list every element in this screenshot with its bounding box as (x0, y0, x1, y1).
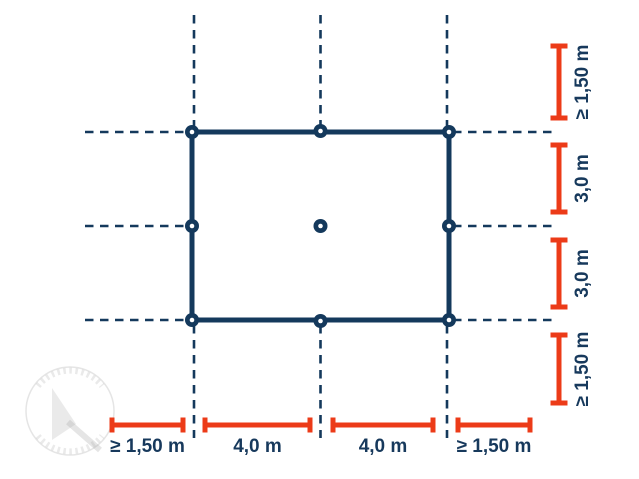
anchor-dot-middle-left (185, 219, 199, 233)
dim-label-right-clearance-bottom: ≥ 1,50 m (572, 332, 593, 407)
dim-label-right-upper-half: 3,0 m (572, 154, 593, 203)
dim-bracket-right-edge-top (551, 46, 568, 118)
dim-label-bottom-clearance-left: ≥ 1,50 m (110, 436, 185, 457)
anchor-dots (185, 124, 456, 328)
dim-bracket-bottom-right-half (333, 418, 433, 433)
anchor-dot-top-right (442, 125, 456, 139)
diagram-canvas: ≥ 1,50 m 3,0 m 3,0 m ≥ 1,50 m ≥ 1,50 m 4… (0, 0, 639, 479)
dim-label-bottom-right-half: 4,0 m (359, 436, 408, 457)
watermark-cursor-tail (68, 422, 100, 450)
watermark-circle (26, 367, 114, 455)
dim-label-right-lower-half: 3,0 m (572, 249, 593, 298)
anchor-dot-bottom-right (442, 313, 456, 327)
dim-bracket-right-edge-bottom (551, 335, 568, 403)
dim-label-bottom-clearance-right: ≥ 1,50 m (457, 436, 532, 457)
anchor-dot-center (314, 219, 328, 233)
dim-label-right-clearance-top: ≥ 1,50 m (572, 45, 593, 120)
spacing-diagram: ≥ 1,50 m 3,0 m 3,0 m ≥ 1,50 m ≥ 1,50 m 4… (0, 0, 639, 479)
watermark-logo (26, 367, 114, 455)
dimension-brackets-right: ≥ 1,50 m 3,0 m 3,0 m ≥ 1,50 m (551, 45, 594, 407)
watermark-cursor-icon (52, 388, 76, 440)
anchor-dot-bottom-middle (314, 314, 328, 328)
dim-bracket-right-lower-half (551, 240, 568, 307)
anchor-dot-bottom-left (185, 313, 199, 327)
dim-bracket-bottom-left-half (205, 418, 310, 433)
anchor-dot-top-left (185, 125, 199, 139)
anchor-dot-middle-right (442, 219, 456, 233)
dim-bracket-bottom-clearance-left (112, 418, 183, 433)
dim-bracket-bottom-clearance-right (458, 418, 530, 433)
dim-bracket-right-upper-half (551, 145, 568, 212)
dim-label-bottom-left-half: 4,0 m (233, 436, 282, 457)
anchor-dot-top-middle (314, 124, 328, 138)
